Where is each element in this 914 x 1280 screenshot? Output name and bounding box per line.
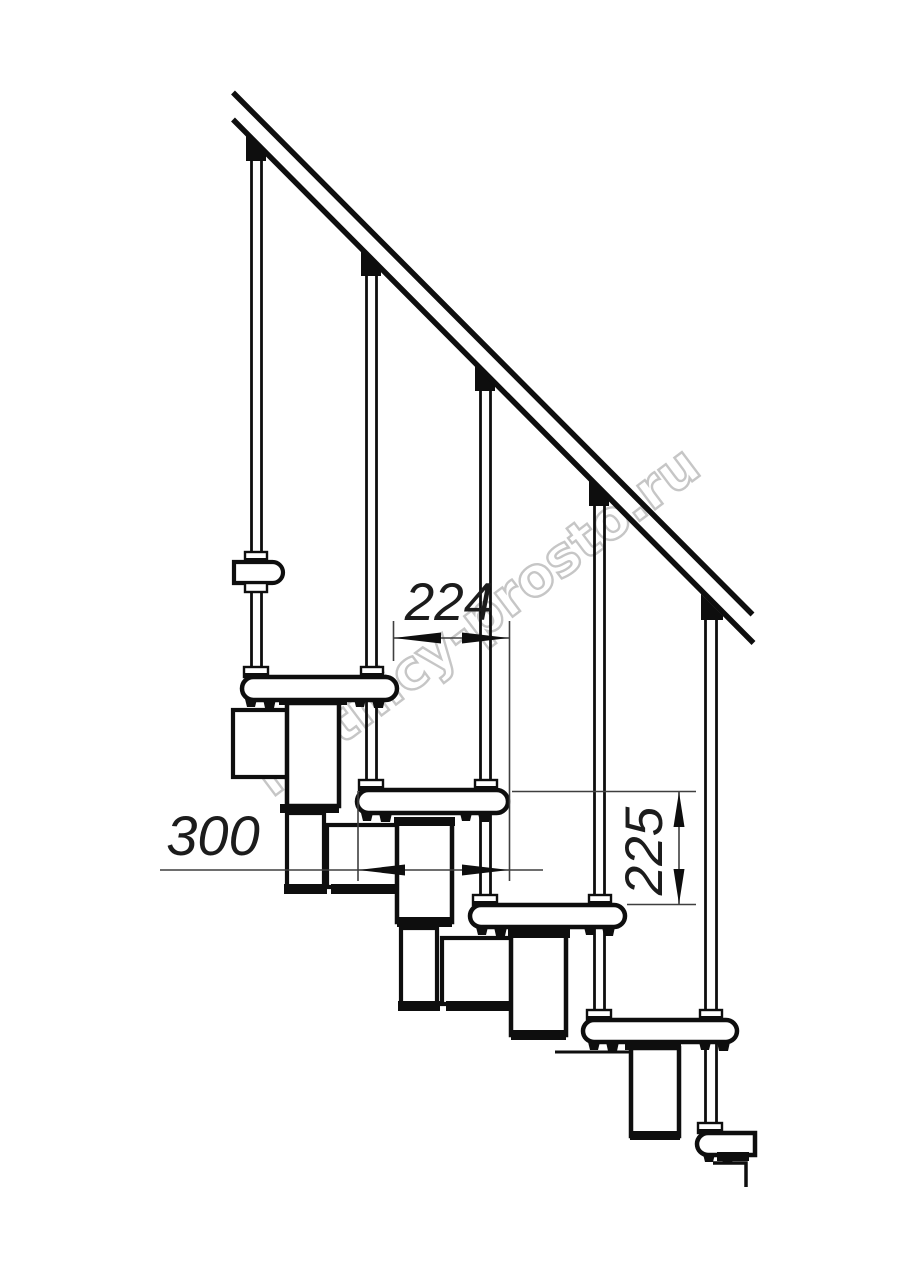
support-module-1-bottom-plate <box>280 804 339 813</box>
rear-step-block <box>233 710 288 777</box>
tread-2 <box>357 790 508 813</box>
rear-neck-1-plate <box>284 884 327 894</box>
staircase-drawing-page: lestnicy-prosto.ru <box>0 0 914 1280</box>
tread-4 <box>583 1020 737 1042</box>
support-module-2 <box>397 823 452 922</box>
tread-5-partial <box>697 1133 755 1155</box>
support-module-1 <box>287 703 339 806</box>
tread-0-partial <box>234 562 283 583</box>
rear-box-1 <box>327 825 403 887</box>
rear-neck-2-plate <box>398 1001 440 1011</box>
tread-3 <box>470 905 625 927</box>
staircase-drawing: lestnicy-prosto.ru <box>0 0 914 1280</box>
support-module-4 <box>631 1048 679 1136</box>
support-module-2-top-plate <box>394 817 455 826</box>
rear-box-1-plate <box>331 884 403 894</box>
support-module-3-top-plate <box>508 929 570 938</box>
support-module-4-bottom-plate <box>630 1131 680 1140</box>
support-module-2-bottom-plate <box>397 917 452 927</box>
rear-neck-2 <box>401 928 437 1005</box>
dimension-rise-label: 225 <box>615 806 674 896</box>
dimension-tread-depth-label: 300 <box>166 804 259 867</box>
rear-neck-1 <box>287 813 324 888</box>
support-module-3-bottom-plate <box>511 1030 566 1040</box>
rear-box-2 <box>442 938 518 1004</box>
support-module-3 <box>511 935 566 1035</box>
rear-box-2-plate <box>446 1001 518 1011</box>
tread-1 <box>242 677 397 700</box>
dimension-going-label: 224 <box>404 573 493 632</box>
